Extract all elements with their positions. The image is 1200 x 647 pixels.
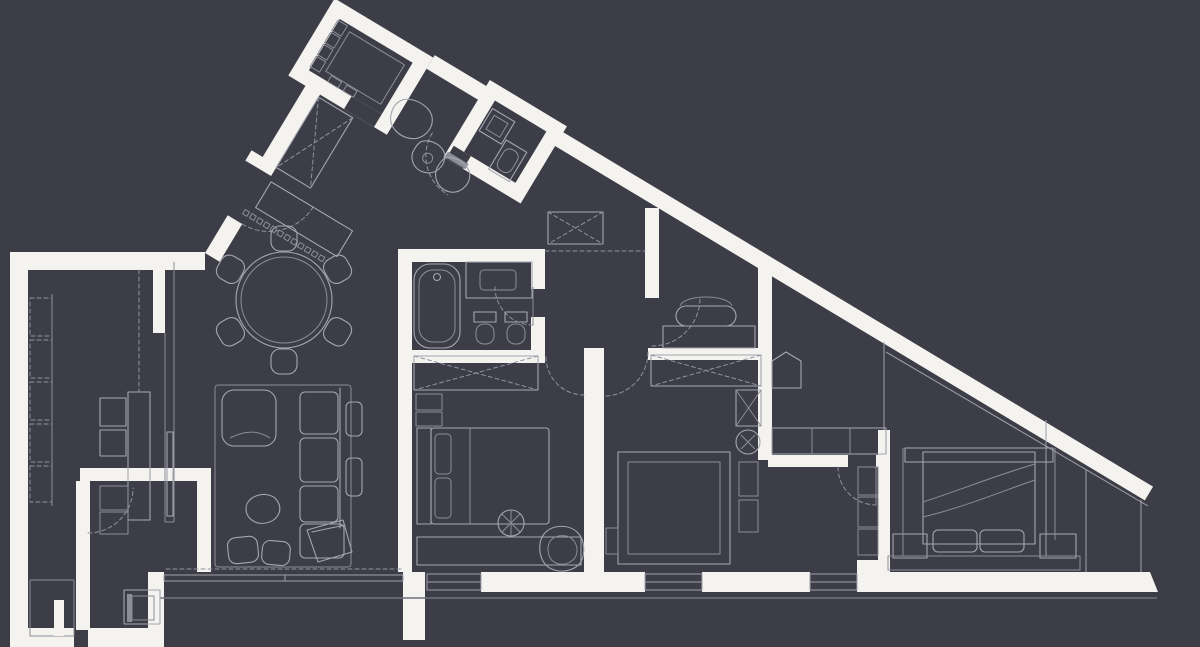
wall-pillar-living-left bbox=[148, 572, 164, 647]
wall-bottom-step bbox=[857, 560, 880, 592]
wall-bottom-1 bbox=[481, 572, 645, 592]
wall-master-west bbox=[878, 430, 890, 572]
wall-utility-right bbox=[197, 481, 211, 572]
wall-bath-right-upper bbox=[531, 262, 545, 289]
floor-plan-svg bbox=[0, 0, 1200, 647]
wall-utility-top bbox=[80, 468, 211, 481]
utility-door-leaf bbox=[84, 485, 90, 533]
shaft-door bbox=[54, 600, 64, 636]
wall-bottom-master bbox=[880, 572, 1158, 592]
wall-bottom-2 bbox=[702, 572, 810, 592]
wall-hall-south bbox=[648, 348, 770, 360]
wall-bed1-bed2 bbox=[584, 348, 604, 572]
wall-innerhall-south-a bbox=[768, 455, 848, 467]
floor-plan-canvas bbox=[0, 0, 1200, 647]
wall-pillar-living-right bbox=[403, 572, 425, 640]
wall-bed2-east bbox=[758, 268, 772, 460]
wall-study-west bbox=[645, 208, 659, 298]
wall-kitchen-stub bbox=[153, 262, 165, 333]
washing-machine-panel bbox=[127, 594, 132, 622]
wall-bottom-left-a bbox=[10, 628, 74, 647]
